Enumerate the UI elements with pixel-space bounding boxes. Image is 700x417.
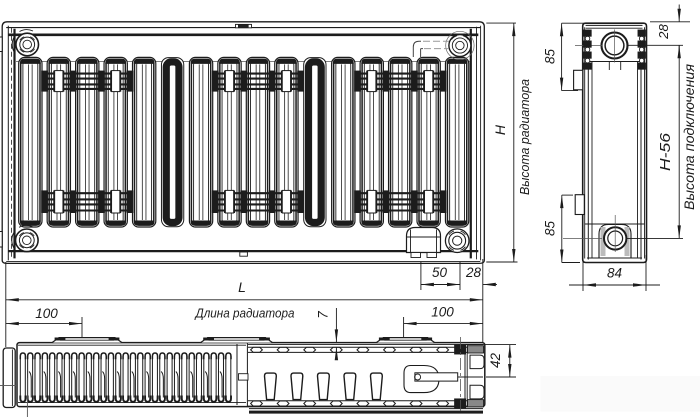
svg-text:7: 7	[316, 311, 331, 319]
svg-text:50: 50	[432, 265, 448, 280]
svg-text:Высота подключения: Высота подключения	[682, 64, 697, 210]
svg-text:84: 84	[607, 266, 622, 281]
svg-text:Длина радиатора: Длина радиатора	[194, 306, 295, 321]
svg-text:H-56: H-56	[658, 132, 674, 171]
svg-text:85: 85	[543, 49, 558, 65]
svg-text:28: 28	[656, 24, 671, 40]
svg-text:100: 100	[35, 306, 58, 321]
svg-text:100: 100	[431, 305, 454, 320]
svg-text:L: L	[238, 279, 246, 295]
svg-text:H: H	[492, 124, 508, 135]
svg-text:85: 85	[543, 221, 558, 237]
svg-text:Высота радиатора: Высота радиатора	[518, 79, 532, 195]
svg-text:28: 28	[465, 265, 482, 280]
svg-text:42: 42	[488, 353, 503, 369]
